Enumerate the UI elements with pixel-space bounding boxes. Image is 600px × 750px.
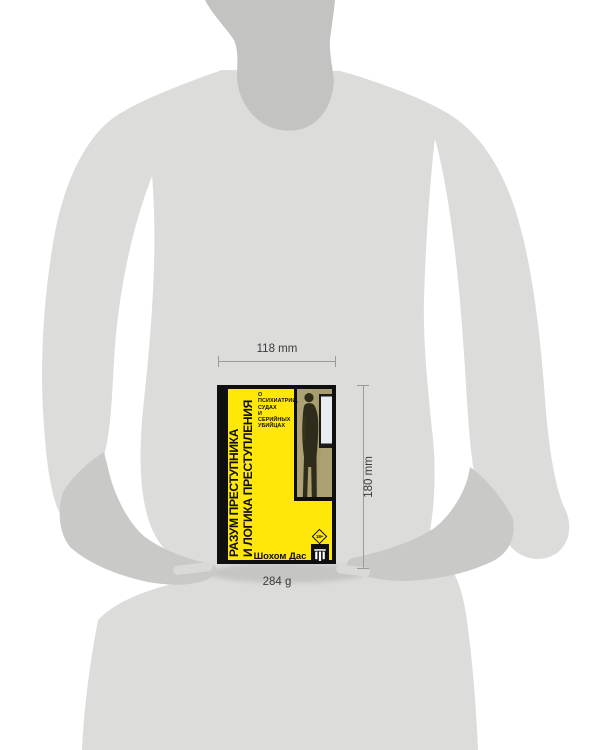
book-title-line2: И ЛОГИКА ПРЕСТУПЛЕНИЯ (242, 389, 256, 557)
book-title-line1: РАЗУМ ПРЕСТУПНИКА (228, 389, 242, 557)
weight-label: 284 g (208, 576, 346, 588)
subtitle-line: О ПСИХИАТРИИ, (258, 392, 292, 405)
book-cover: РАЗУМ ПРЕСТУПНИКА И ЛОГИКА ПРЕСТУПЛЕНИЯ … (217, 385, 336, 564)
width-dimension-line (218, 361, 336, 362)
height-label-wrap: 180 mm (352, 385, 386, 569)
subtitle-line: И СЕРИЙНЫХ (258, 411, 292, 424)
width-tick-right (335, 356, 336, 367)
book-author: Шохом Дас (244, 551, 316, 562)
age-badge-text: 18+ (315, 533, 322, 538)
width-tick-left (218, 356, 219, 367)
publisher-logo-icon (311, 544, 329, 564)
cover-photo (294, 389, 332, 501)
person-silhouette (0, 0, 600, 750)
height-label: 180 mm (363, 456, 375, 498)
subtitle-line: УБИЙЦАХ (258, 423, 292, 429)
book-title: РАЗУМ ПРЕСТУПНИКА И ЛОГИКА ПРЕСТУПЛЕНИЯ (228, 389, 258, 560)
width-label: 118 mm (208, 343, 346, 355)
cover-photo-scene (297, 389, 332, 497)
book-subtitle: О ПСИХИАТРИИ, СУДАХ И СЕРИЙНЫХ УБИЙЦАХ (258, 392, 292, 430)
screen-icon (319, 394, 332, 448)
